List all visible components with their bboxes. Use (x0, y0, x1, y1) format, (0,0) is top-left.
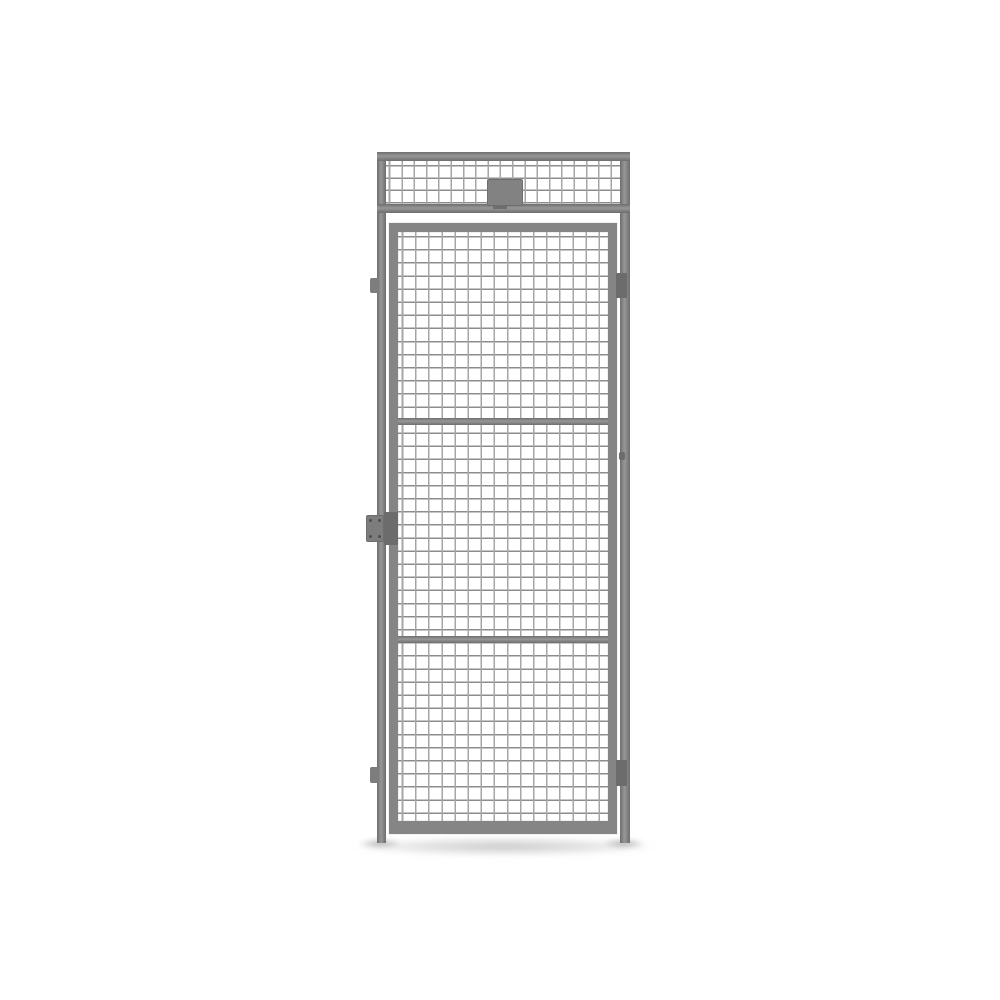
door-mid-rail-upper (398, 418, 608, 425)
wire-mesh-partition-door-image (0, 0, 1000, 1000)
screw-icon (369, 535, 372, 538)
screw-icon (378, 535, 381, 538)
transom-top-rail (377, 152, 630, 161)
frame-post-right (620, 152, 630, 843)
hinge-pin-middle-right-icon (619, 452, 625, 460)
screw-icon (378, 519, 381, 522)
screw-icon (369, 519, 372, 522)
frame-post-left (377, 152, 386, 843)
door-mid-rail-lower (398, 636, 608, 643)
label-plate (487, 179, 523, 206)
door-mesh (398, 232, 608, 821)
lock-hasp-plate-icon (366, 515, 384, 542)
hinge-top-right-icon (616, 273, 627, 298)
hinge-bottom-right-icon (616, 760, 627, 786)
door-panel (389, 223, 617, 834)
mounting-lug-top-left-icon (370, 278, 378, 293)
lock-block-icon (384, 512, 398, 545)
mounting-lug-bottom-left-icon (370, 767, 378, 783)
